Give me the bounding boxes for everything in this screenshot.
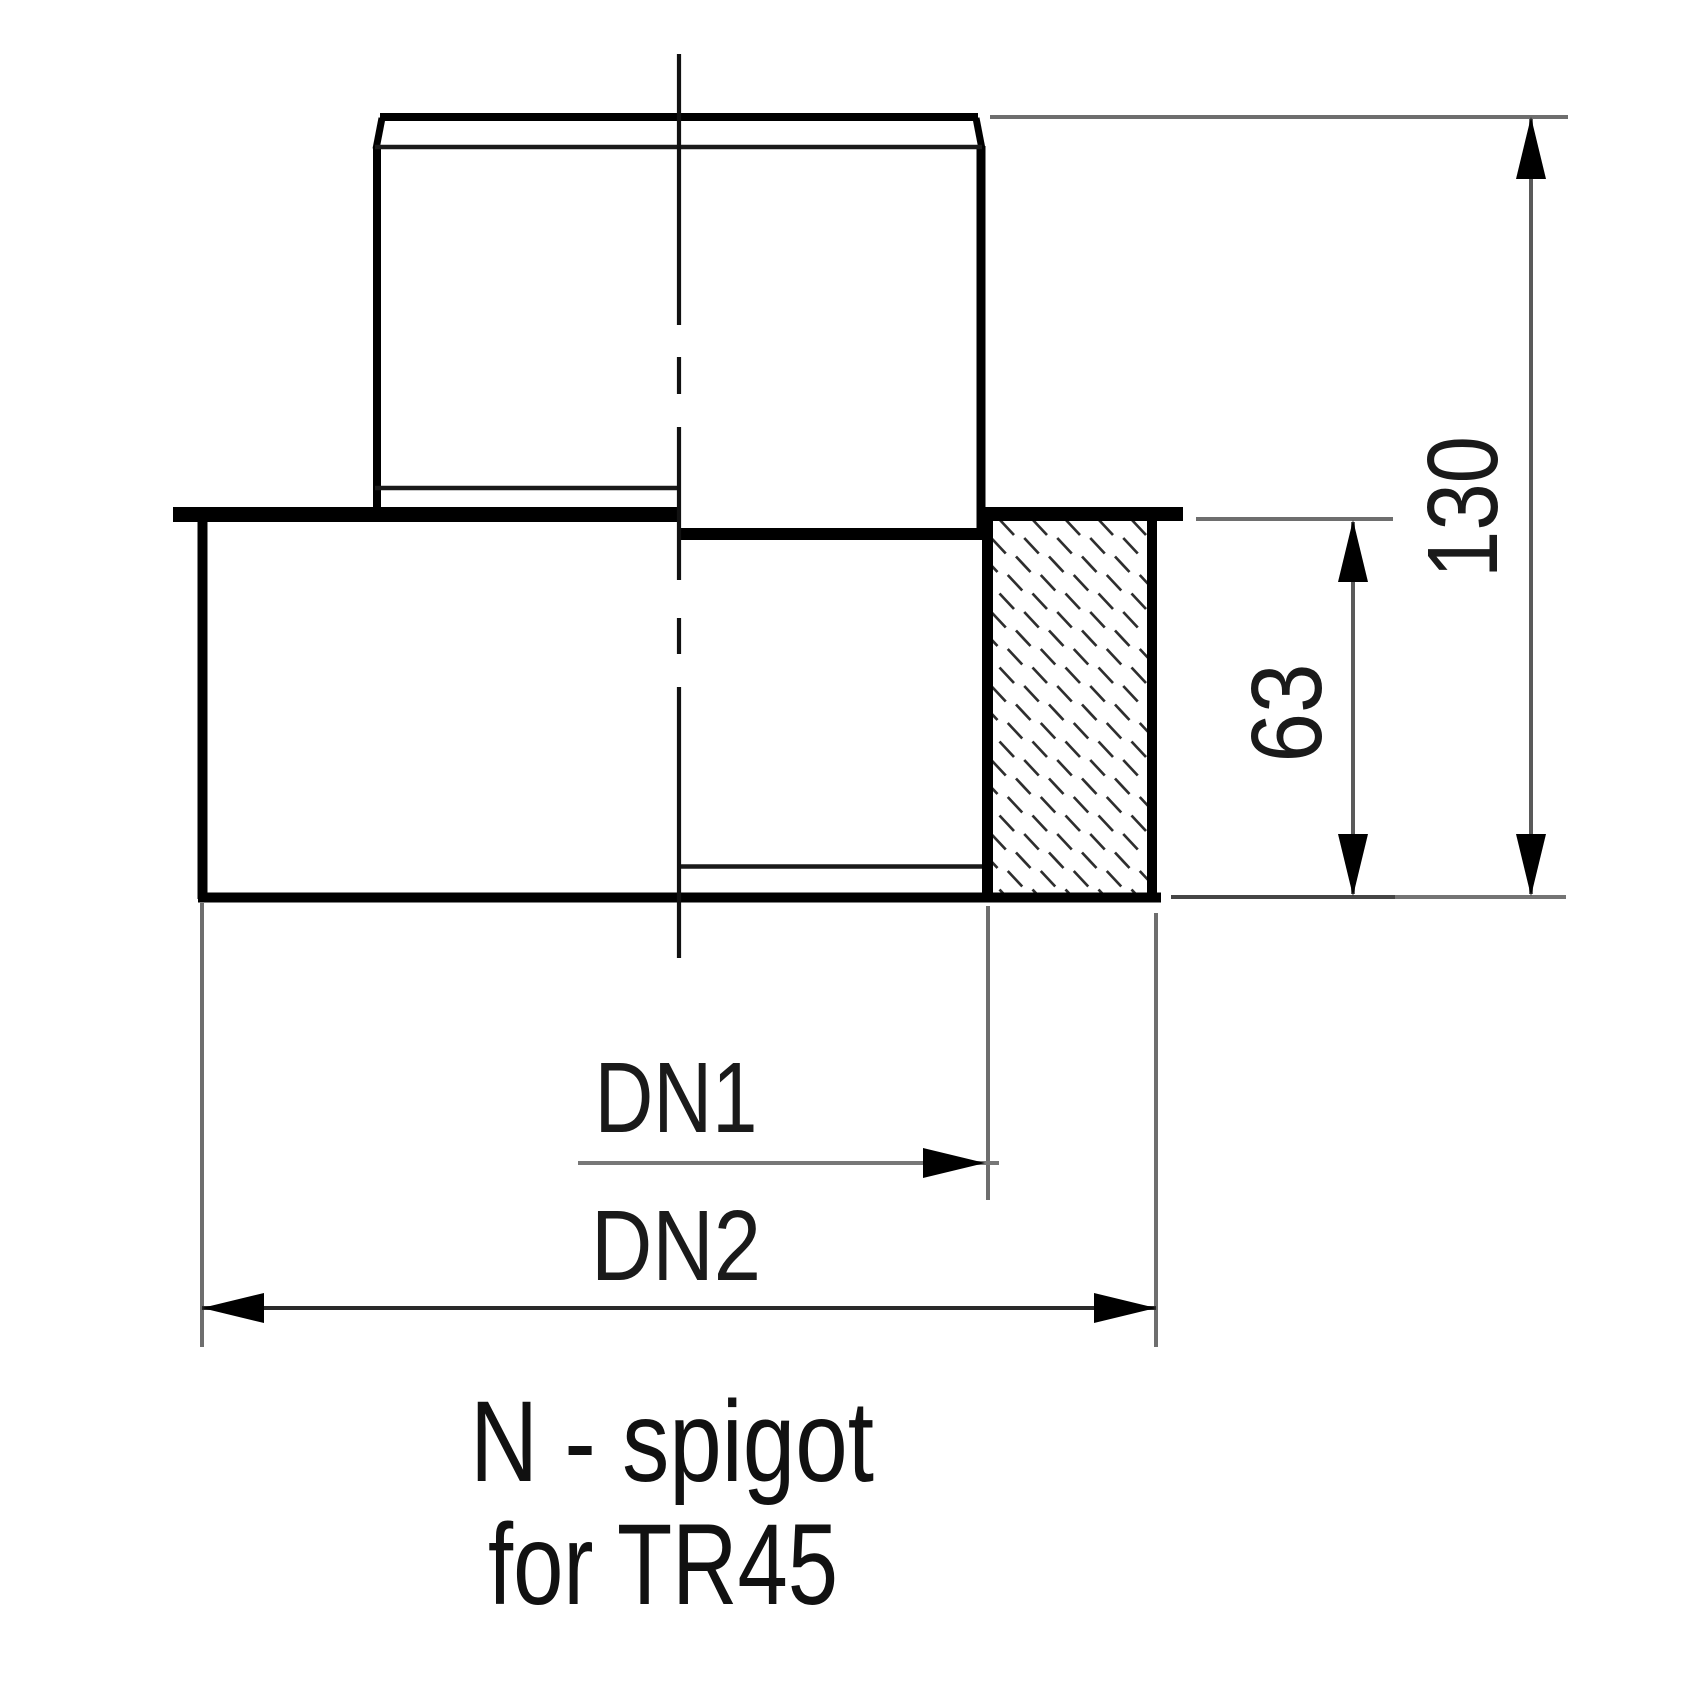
svg-text:DN2: DN2 [591,1190,761,1302]
svg-text:63: 63 [1231,664,1343,763]
svg-text:N - spigot: N - spigot [470,1378,874,1506]
svg-text:DN1: DN1 [595,1042,758,1154]
svg-text:130: 130 [1407,436,1519,578]
svg-text:for TR45: for TR45 [488,1501,838,1629]
